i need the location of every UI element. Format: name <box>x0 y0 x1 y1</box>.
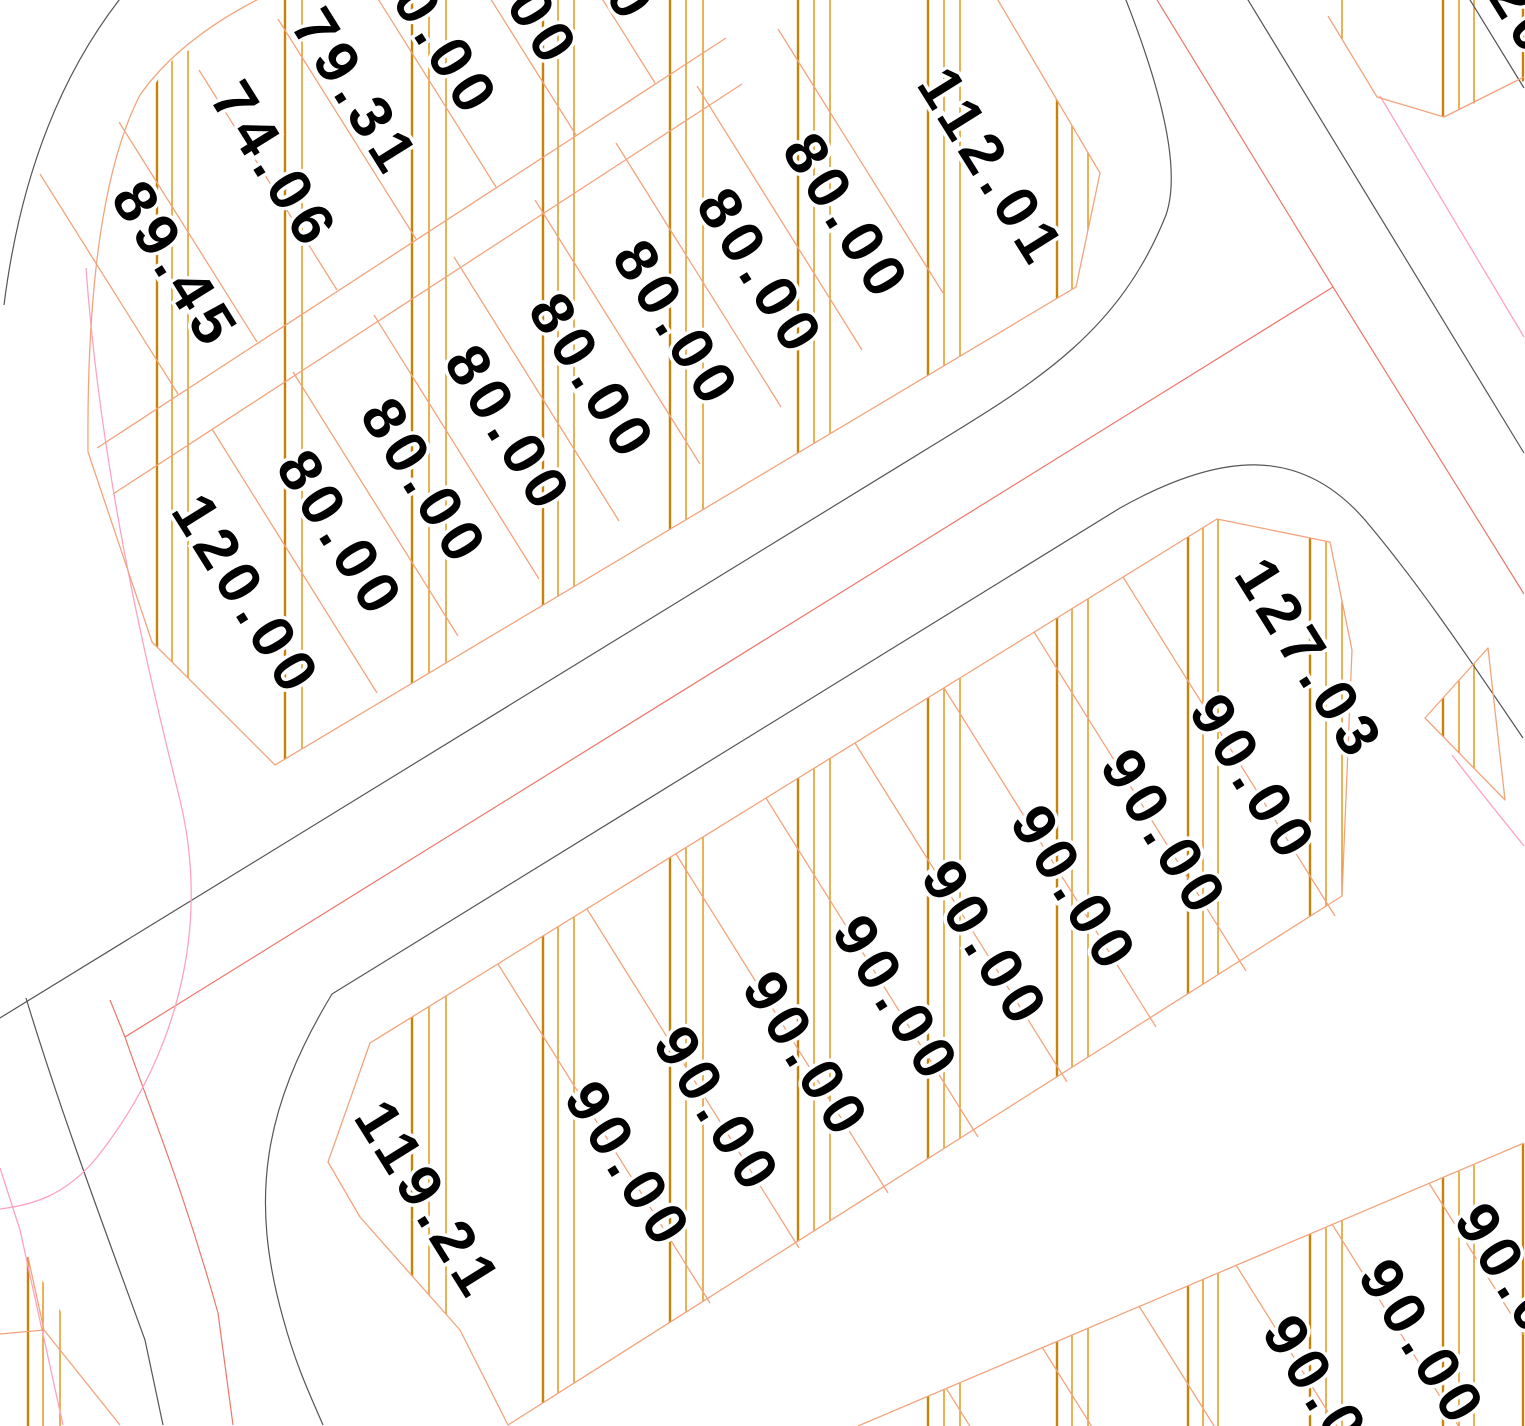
road-edge-line <box>26 998 163 1425</box>
hatch-lines <box>28 0 1523 1426</box>
hatch-line-group <box>28 0 1523 1426</box>
map-canvas[interactable]: 89.4574.0679.3180.0080.0080.00120.0080.0… <box>0 0 1525 1426</box>
hatch-line-group <box>28 0 1523 1426</box>
road-edge-line <box>4 0 123 305</box>
lot-line <box>1042 1347 1201 1426</box>
road-edge-line <box>1245 0 1524 453</box>
cad-viewport: 89.4574.0679.3180.0080.0080.00120.0080.0… <box>0 0 1525 1426</box>
road-centerline <box>0 268 191 1209</box>
hatch-line-group <box>28 0 1523 1426</box>
hatch-line-group <box>28 0 1523 1426</box>
dimension-label: 20.00 <box>1474 0 1525 158</box>
road-centerline <box>1154 0 1524 594</box>
hatch-line-group <box>28 0 1523 1426</box>
road-centerline <box>0 1168 63 1425</box>
road-centerline <box>110 1000 233 1425</box>
road-centerline <box>1380 96 1524 337</box>
lot-line <box>946 1388 1105 1426</box>
dimension-label: 89.45 <box>98 169 253 362</box>
block-boundary <box>1425 648 1505 800</box>
dimension-labels: 89.4574.0679.3180.0080.0080.00120.0080.0… <box>98 0 1525 1426</box>
dimension-label: 112.01 <box>905 56 1080 280</box>
hatch-line-group <box>28 0 1523 1426</box>
road-centerline <box>1452 755 1524 846</box>
